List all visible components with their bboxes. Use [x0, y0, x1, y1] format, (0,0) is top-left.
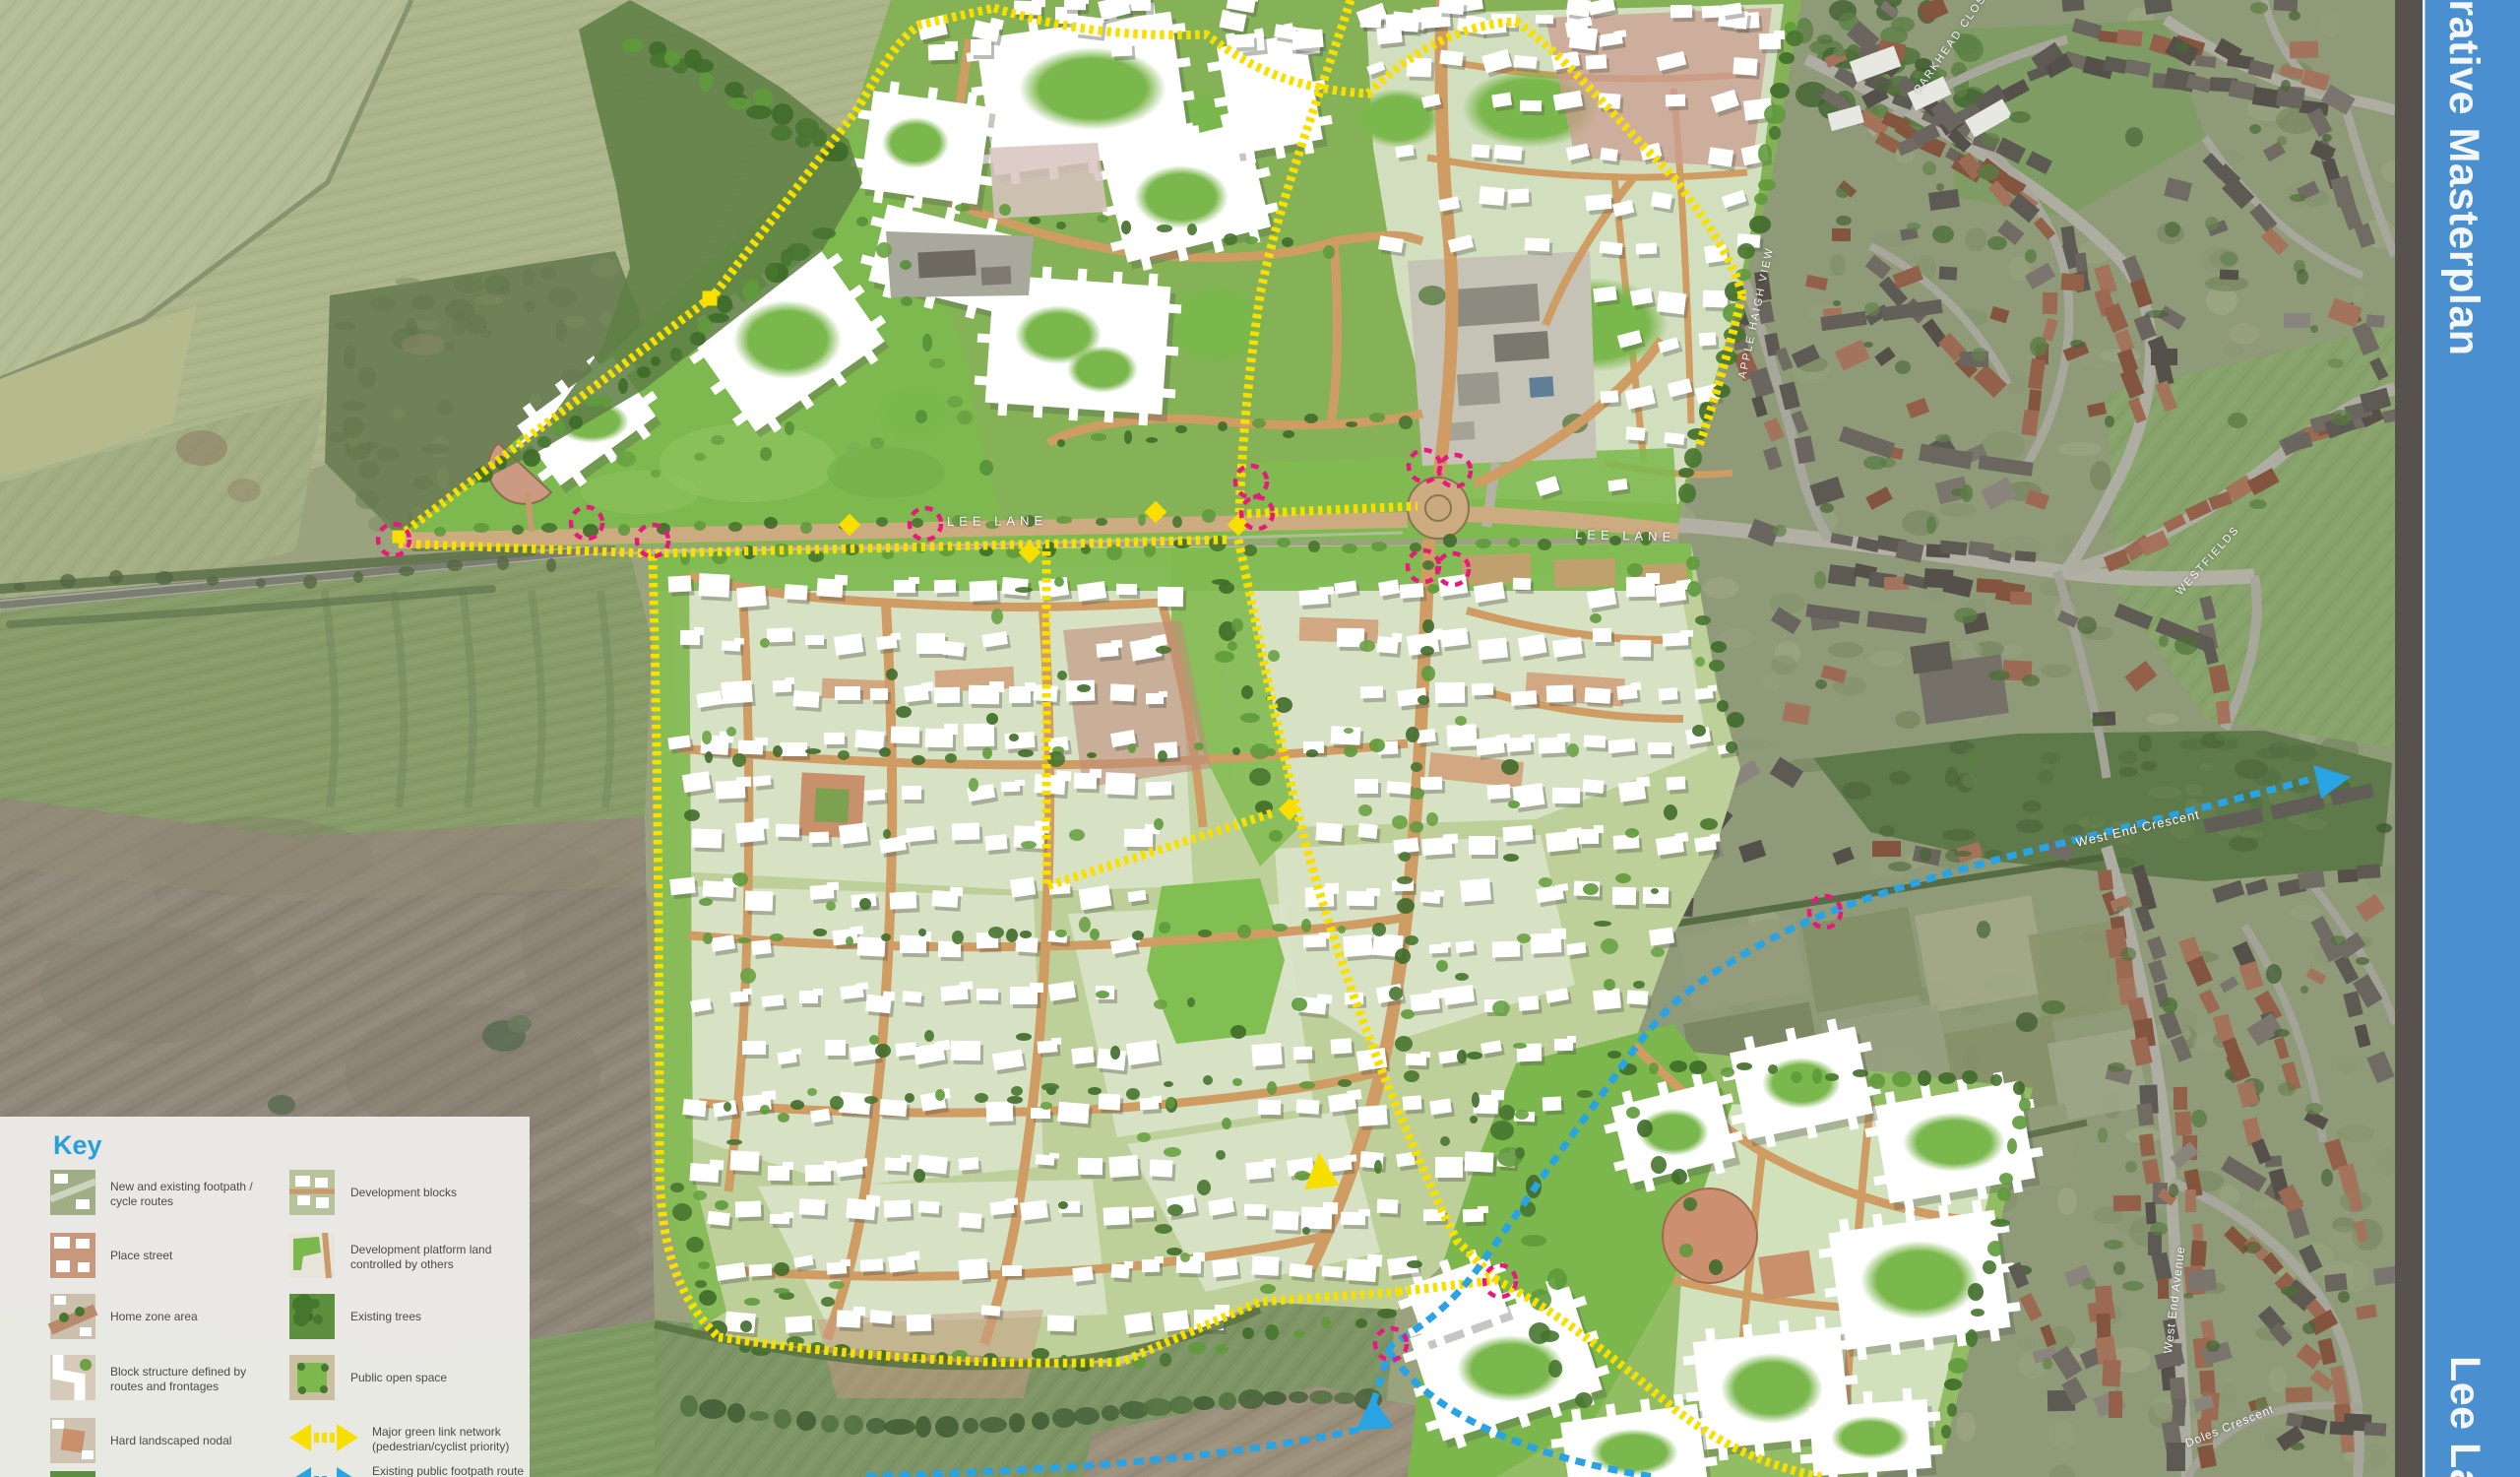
svg-text:Development platform land: Development platform land [350, 1243, 491, 1256]
svg-text:Hard landscaped nodal: Hard landscaped nodal [110, 1434, 231, 1447]
svg-text:Block structure defined by: Block structure defined by [110, 1365, 246, 1379]
svg-text:LEE LANE: LEE LANE [1575, 527, 1676, 545]
svg-text:(pedestrian/cyclist priority): (pedestrian/cyclist priority) [372, 1440, 509, 1453]
svg-text:Major green link network: Major green link network [372, 1425, 502, 1439]
svg-text:Existing trees: Existing trees [350, 1310, 421, 1323]
svg-text:Development blocks: Development blocks [350, 1186, 457, 1199]
svg-text:routes and frontages: routes and frontages [110, 1380, 219, 1393]
svg-text:Public open space: Public open space [350, 1371, 447, 1384]
svg-text:LEE LANE: LEE LANE [947, 513, 1047, 529]
svg-text:Existing public footpath route: Existing public footpath route [372, 1464, 524, 1477]
svg-text:cycle routes: cycle routes [110, 1194, 173, 1208]
svg-text:controlled by others: controlled by others [350, 1257, 454, 1271]
svg-text:Home zone area: Home zone area [110, 1310, 198, 1323]
svg-text:Place street: Place street [110, 1249, 173, 1262]
svg-text:Lee Lane: Lee Lane [2441, 1356, 2488, 1477]
svg-text:Illustrative Masterplan: Illustrative Masterplan [2440, 0, 2488, 356]
svg-text:Key: Key [53, 1130, 102, 1160]
svg-text:New and existing footpath /: New and existing footpath / [110, 1180, 253, 1193]
